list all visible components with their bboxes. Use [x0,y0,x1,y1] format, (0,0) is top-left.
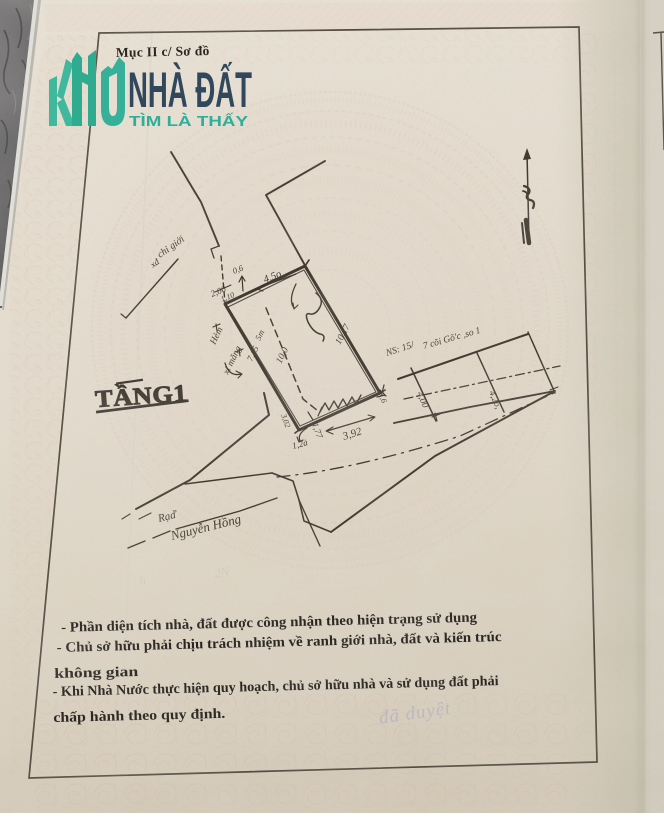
svg-text:TÌM LÀ THẤY: TÌM LÀ THẤY [129,113,248,130]
svg-text:Mục II c/ Sơ đồ: Mục II c/ Sơ đồ [116,43,210,60]
svg-text:NHÀ ĐẤT: NHÀ ĐẤT [128,62,252,118]
